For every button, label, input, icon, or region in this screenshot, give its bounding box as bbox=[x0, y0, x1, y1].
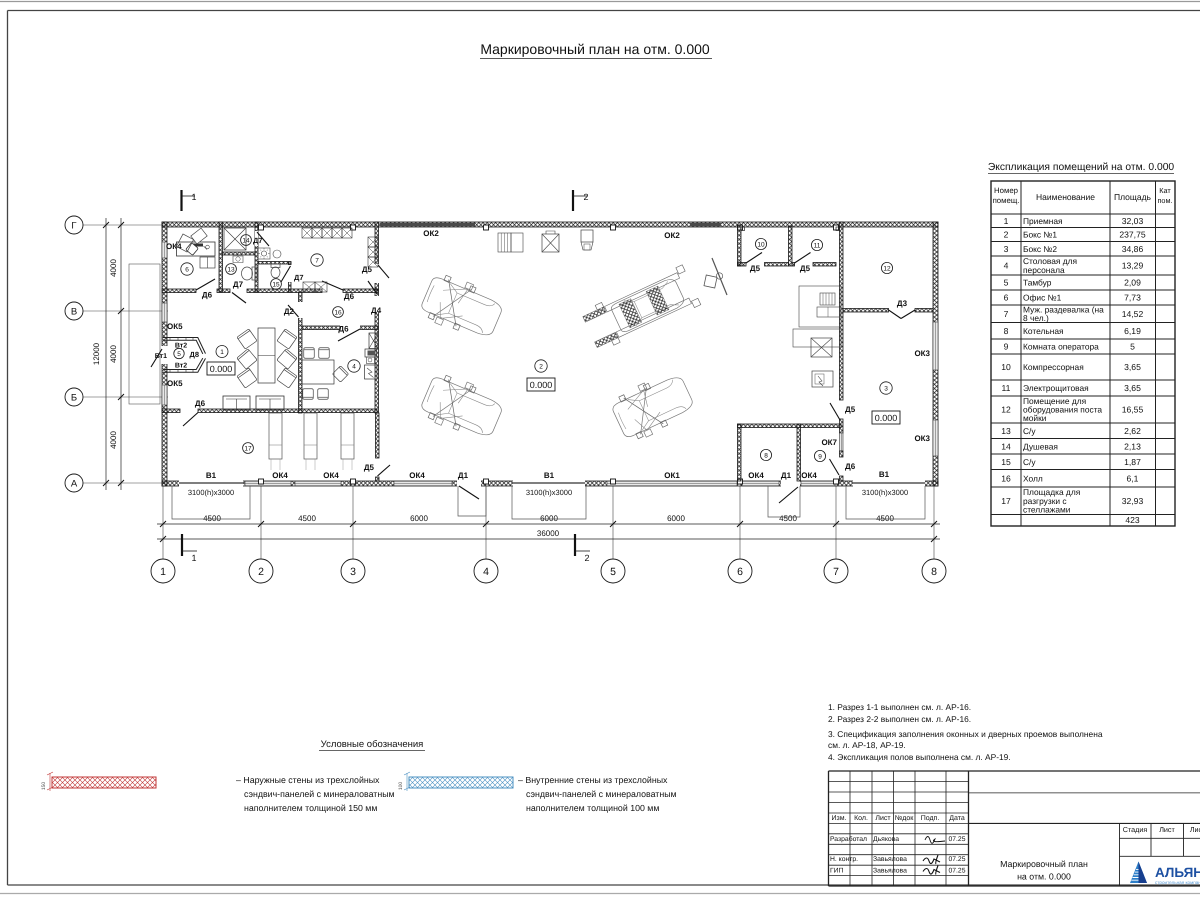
svg-text:423: 423 bbox=[1125, 515, 1140, 525]
svg-text:Маркировочный план на отм. 0.0: Маркировочный план на отм. 0.000 bbox=[480, 41, 710, 57]
svg-text:07.25: 07.25 bbox=[948, 856, 965, 863]
svg-text:2: 2 bbox=[583, 192, 588, 202]
svg-text:36000: 36000 bbox=[537, 529, 560, 538]
svg-text:строительная компания: строительная компания bbox=[1155, 880, 1200, 885]
svg-text:2: 2 bbox=[584, 553, 589, 563]
svg-text:ОК4: ОК4 bbox=[748, 471, 764, 480]
svg-text:Вт1: Вт1 bbox=[155, 353, 167, 360]
svg-text:4500: 4500 bbox=[298, 514, 316, 523]
svg-text:Д1: Д1 bbox=[458, 471, 469, 480]
svg-text:5: 5 bbox=[177, 351, 181, 358]
svg-text:ОК7: ОК7 bbox=[821, 438, 837, 447]
svg-text:Площадь: Площадь bbox=[1114, 192, 1152, 202]
svg-text:ОК2: ОК2 bbox=[423, 229, 439, 238]
svg-text:Стадия: Стадия bbox=[1123, 825, 1148, 834]
svg-text:Компрессорная: Компрессорная bbox=[1023, 362, 1084, 372]
svg-text:17: 17 bbox=[244, 445, 252, 452]
svg-text:персонала: персонала bbox=[1023, 265, 1065, 275]
svg-text:№док: №док bbox=[895, 815, 914, 822]
svg-text:Д6: Д6 bbox=[338, 325, 349, 334]
svg-text:4000: 4000 bbox=[109, 345, 118, 363]
svg-text:на отм. 0.000: на отм. 0.000 bbox=[1017, 872, 1071, 882]
svg-text:ОК2: ОК2 bbox=[664, 231, 680, 240]
svg-text:А: А bbox=[71, 478, 78, 489]
svg-text:Д8: Д8 bbox=[190, 350, 200, 359]
svg-text:Лист: Лист bbox=[1159, 825, 1175, 834]
svg-text:3. Спецификация заполнения око: 3. Спецификация заполнения оконных и две… bbox=[828, 729, 1103, 739]
svg-text:1: 1 bbox=[191, 553, 196, 563]
svg-text:АЛЬЯН: АЛЬЯН bbox=[1155, 865, 1200, 880]
svg-text:16,55: 16,55 bbox=[1122, 405, 1144, 415]
svg-text:Д7: Д7 bbox=[233, 280, 244, 289]
svg-text:8: 8 bbox=[1004, 326, 1009, 336]
svg-text:3100(h)х3000: 3100(h)х3000 bbox=[862, 488, 908, 497]
svg-text:ОК3: ОК3 bbox=[914, 349, 930, 358]
svg-text:6000: 6000 bbox=[667, 514, 685, 523]
svg-text:4500: 4500 bbox=[779, 514, 797, 523]
svg-text:11: 11 bbox=[1002, 383, 1011, 393]
svg-text:150: 150 bbox=[41, 782, 47, 791]
svg-text:4500: 4500 bbox=[203, 514, 221, 523]
svg-text:2: 2 bbox=[258, 566, 264, 578]
svg-text:12000: 12000 bbox=[92, 342, 101, 365]
svg-text:– Наружные стены из трехслойны: – Наружные стены из трехслойных bbox=[236, 775, 380, 785]
svg-text:3,65: 3,65 bbox=[1124, 362, 1141, 372]
svg-text:Д5: Д5 bbox=[800, 264, 811, 273]
svg-text:ОК4: ОК4 bbox=[323, 471, 339, 480]
svg-text:Д5: Д5 bbox=[364, 463, 375, 472]
svg-text:32,93: 32,93 bbox=[1122, 496, 1144, 506]
svg-text:6: 6 bbox=[1004, 293, 1009, 303]
svg-text:Вт2: Вт2 bbox=[175, 363, 187, 370]
svg-text:13: 13 bbox=[1001, 426, 1011, 436]
svg-text:6000: 6000 bbox=[410, 514, 428, 523]
svg-text:1,87: 1,87 bbox=[1124, 457, 1141, 467]
svg-text:Д6: Д6 bbox=[344, 292, 355, 301]
svg-text:Д7: Д7 bbox=[253, 236, 263, 245]
svg-text:4000: 4000 bbox=[109, 431, 118, 449]
svg-text:наполнителем толщиной 100 мм: наполнителем толщиной 100 мм bbox=[526, 803, 659, 813]
svg-text:Лист: Лист bbox=[875, 815, 891, 822]
svg-text:С/у: С/у bbox=[1023, 426, 1036, 436]
svg-text:Экспликация помещений на отм.: Экспликация помещений на отм. 0.000 bbox=[988, 162, 1175, 173]
svg-text:ОК4: ОК4 bbox=[801, 471, 817, 480]
svg-text:помещ.: помещ. bbox=[993, 196, 1020, 205]
svg-text:Н. контр.: Н. контр. bbox=[830, 856, 858, 863]
svg-text:6,1: 6,1 bbox=[1127, 473, 1139, 483]
svg-text:Изм.: Изм. bbox=[832, 815, 847, 822]
svg-text:Д7: Д7 bbox=[294, 273, 304, 282]
svg-text:0.000: 0.000 bbox=[530, 380, 553, 390]
svg-text:ОК4: ОК4 bbox=[166, 242, 182, 251]
svg-text:1: 1 bbox=[220, 349, 224, 356]
svg-text:В1: В1 bbox=[206, 471, 217, 480]
svg-text:0.000: 0.000 bbox=[875, 413, 898, 423]
svg-text:Подп.: Подп. bbox=[921, 815, 940, 822]
svg-text:6: 6 bbox=[737, 566, 743, 578]
svg-text:1. Разрез 1-1 выполнен см. л.: 1. Разрез 1-1 выполнен см. л. АР-16. bbox=[828, 702, 971, 712]
svg-text:2: 2 bbox=[539, 363, 543, 370]
svg-text:07.25: 07.25 bbox=[948, 836, 965, 843]
svg-text:Бокс №2: Бокс №2 bbox=[1023, 244, 1057, 254]
svg-text:7: 7 bbox=[833, 566, 839, 578]
svg-text:2,09: 2,09 bbox=[1124, 278, 1141, 288]
svg-text:Приемная: Приемная bbox=[1023, 216, 1063, 226]
svg-text:Разработал: Разработал bbox=[830, 836, 867, 843]
svg-text:4500: 4500 bbox=[876, 514, 894, 523]
svg-text:В1: В1 bbox=[879, 470, 890, 479]
svg-text:5: 5 bbox=[610, 566, 616, 578]
svg-text:6000: 6000 bbox=[540, 514, 558, 523]
svg-text:пом.: пом. bbox=[1157, 196, 1172, 205]
svg-text:2,13: 2,13 bbox=[1124, 441, 1141, 451]
svg-text:13: 13 bbox=[227, 266, 235, 273]
svg-text:Бокс №1: Бокс №1 bbox=[1023, 230, 1057, 240]
svg-text:07.25: 07.25 bbox=[948, 868, 965, 875]
svg-text:Наименование: Наименование bbox=[1036, 192, 1095, 202]
svg-text:Д5: Д5 bbox=[750, 264, 761, 273]
svg-text:2,62: 2,62 bbox=[1124, 426, 1141, 436]
svg-text:Котельная: Котельная bbox=[1023, 326, 1064, 336]
svg-text:Дьякова: Дьякова bbox=[873, 836, 899, 843]
svg-text:Электрощитовая: Электрощитовая bbox=[1023, 383, 1089, 393]
svg-text:Д1: Д1 bbox=[781, 471, 792, 480]
svg-text:3: 3 bbox=[350, 566, 356, 578]
svg-text:Душевая: Душевая bbox=[1023, 441, 1058, 451]
svg-text:Д6: Д6 bbox=[195, 399, 206, 408]
svg-text:8 чел.): 8 чел.) bbox=[1023, 313, 1049, 323]
svg-text:7: 7 bbox=[1004, 309, 1009, 319]
svg-text:Кат: Кат bbox=[1159, 186, 1171, 195]
svg-text:7,73: 7,73 bbox=[1124, 293, 1141, 303]
svg-text:0.000: 0.000 bbox=[210, 364, 233, 374]
svg-text:5: 5 bbox=[1130, 342, 1135, 352]
svg-text:3100(h)х3000: 3100(h)х3000 bbox=[188, 488, 234, 497]
svg-text:Д5: Д5 bbox=[845, 405, 856, 414]
svg-text:1: 1 bbox=[191, 192, 196, 202]
svg-text:1: 1 bbox=[1004, 216, 1009, 226]
svg-text:Тамбур: Тамбур bbox=[1023, 278, 1052, 288]
svg-text:ОК1: ОК1 bbox=[664, 471, 680, 480]
svg-text:Кол.: Кол. bbox=[854, 815, 868, 822]
svg-text:14: 14 bbox=[242, 237, 250, 244]
svg-text:7: 7 bbox=[315, 257, 319, 264]
svg-text:14: 14 bbox=[1001, 441, 1011, 451]
svg-text:2: 2 bbox=[1004, 230, 1009, 240]
svg-text:Д4: Д4 bbox=[371, 306, 382, 315]
svg-text:Д5: Д5 bbox=[362, 265, 373, 274]
svg-text:6: 6 bbox=[185, 266, 189, 273]
svg-text:сэндвич-панелей с минераловатн: сэндвич-панелей с минераловатным bbox=[526, 789, 677, 799]
svg-text:Комната оператора: Комната оператора bbox=[1023, 342, 1099, 352]
svg-text:В1: В1 bbox=[544, 471, 555, 480]
svg-text:ГИП: ГИП bbox=[830, 868, 844, 875]
svg-text:ОК5: ОК5 bbox=[167, 322, 183, 331]
svg-text:Завьялова: Завьялова bbox=[873, 868, 907, 875]
svg-text:1: 1 bbox=[160, 566, 166, 578]
svg-text:15: 15 bbox=[272, 281, 280, 288]
svg-text:9: 9 bbox=[1004, 342, 1009, 352]
svg-text:ОК4: ОК4 bbox=[272, 471, 288, 480]
svg-text:3: 3 bbox=[884, 385, 888, 392]
svg-text:Холл: Холл bbox=[1023, 473, 1043, 483]
svg-text:3,65: 3,65 bbox=[1124, 383, 1141, 393]
svg-text:4000: 4000 bbox=[109, 259, 118, 277]
svg-text:Г: Г bbox=[71, 220, 76, 231]
svg-text:10: 10 bbox=[757, 241, 765, 248]
svg-text:5: 5 bbox=[1004, 278, 1009, 288]
svg-text:16: 16 bbox=[334, 309, 342, 316]
svg-text:4. Экспликация полов выполнена: 4. Экспликация полов выполнена см. л. АР… bbox=[828, 752, 1011, 762]
svg-text:12: 12 bbox=[883, 265, 891, 272]
svg-text:4: 4 bbox=[1004, 261, 1009, 271]
svg-text:– Внутренние стены из трехслой: – Внутренние стены из трехслойных bbox=[518, 775, 668, 785]
svg-text:9: 9 bbox=[818, 453, 822, 460]
svg-text:Б: Б bbox=[71, 392, 77, 403]
svg-text:32,03: 32,03 bbox=[1122, 216, 1144, 226]
svg-text:Д2: Д2 bbox=[284, 307, 295, 316]
svg-text:ОК5: ОК5 bbox=[167, 379, 183, 388]
svg-text:34,86: 34,86 bbox=[1122, 244, 1144, 254]
svg-text:Условные обозначения: Условные обозначения bbox=[321, 739, 424, 750]
svg-text:Номер: Номер bbox=[994, 186, 1019, 195]
svg-text:наполнителем толщиной 150 мм: наполнителем толщиной 150 мм bbox=[244, 803, 377, 813]
svg-text:4: 4 bbox=[483, 566, 489, 578]
svg-text:17: 17 bbox=[1001, 496, 1011, 506]
svg-text:Д3: Д3 bbox=[897, 299, 908, 308]
svg-text:сэндвич-панелей с минераловатн: сэндвич-панелей с минераловатным bbox=[244, 789, 395, 799]
svg-text:8: 8 bbox=[931, 566, 937, 578]
svg-text:ОК4: ОК4 bbox=[409, 471, 425, 480]
svg-text:Маркировочный план: Маркировочный план bbox=[1000, 859, 1088, 869]
svg-text:16: 16 bbox=[1001, 473, 1011, 483]
svg-text:С/у: С/у bbox=[1023, 457, 1036, 467]
svg-text:ОК3: ОК3 bbox=[914, 434, 930, 443]
svg-text:12: 12 bbox=[1001, 405, 1011, 415]
svg-text:В: В bbox=[71, 306, 77, 317]
svg-text:Дата: Дата bbox=[949, 815, 965, 822]
svg-text:Д6: Д6 bbox=[845, 462, 856, 471]
svg-text:стеллажами: стеллажами bbox=[1023, 504, 1071, 514]
svg-text:Офис №1: Офис №1 bbox=[1023, 293, 1062, 303]
svg-text:6,19: 6,19 bbox=[1124, 326, 1141, 336]
svg-text:13,29: 13,29 bbox=[1122, 261, 1144, 271]
svg-text:3100(h)х3000: 3100(h)х3000 bbox=[526, 488, 572, 497]
svg-text:237,75: 237,75 bbox=[1119, 230, 1146, 240]
svg-text:14,52: 14,52 bbox=[1122, 309, 1144, 319]
svg-text:Лис: Лис bbox=[1190, 825, 1200, 834]
svg-text:мойки: мойки bbox=[1023, 413, 1047, 423]
svg-text:11: 11 bbox=[814, 242, 821, 249]
svg-text:3: 3 bbox=[1004, 244, 1009, 254]
svg-text:8: 8 bbox=[764, 452, 768, 459]
svg-text:см. л. АР-18, АР-19.: см. л. АР-18, АР-19. bbox=[828, 740, 906, 750]
svg-text:15: 15 bbox=[1001, 457, 1011, 467]
svg-text:Завьялова: Завьялова bbox=[873, 856, 907, 863]
svg-text:2. Разрез 2-2 выполнен см. л.: 2. Разрез 2-2 выполнен см. л. АР-16. bbox=[828, 714, 971, 724]
svg-text:10: 10 bbox=[1001, 362, 1011, 372]
svg-text:Д6: Д6 bbox=[202, 291, 213, 300]
svg-text:100: 100 bbox=[398, 782, 404, 791]
svg-text:4: 4 bbox=[352, 363, 356, 370]
